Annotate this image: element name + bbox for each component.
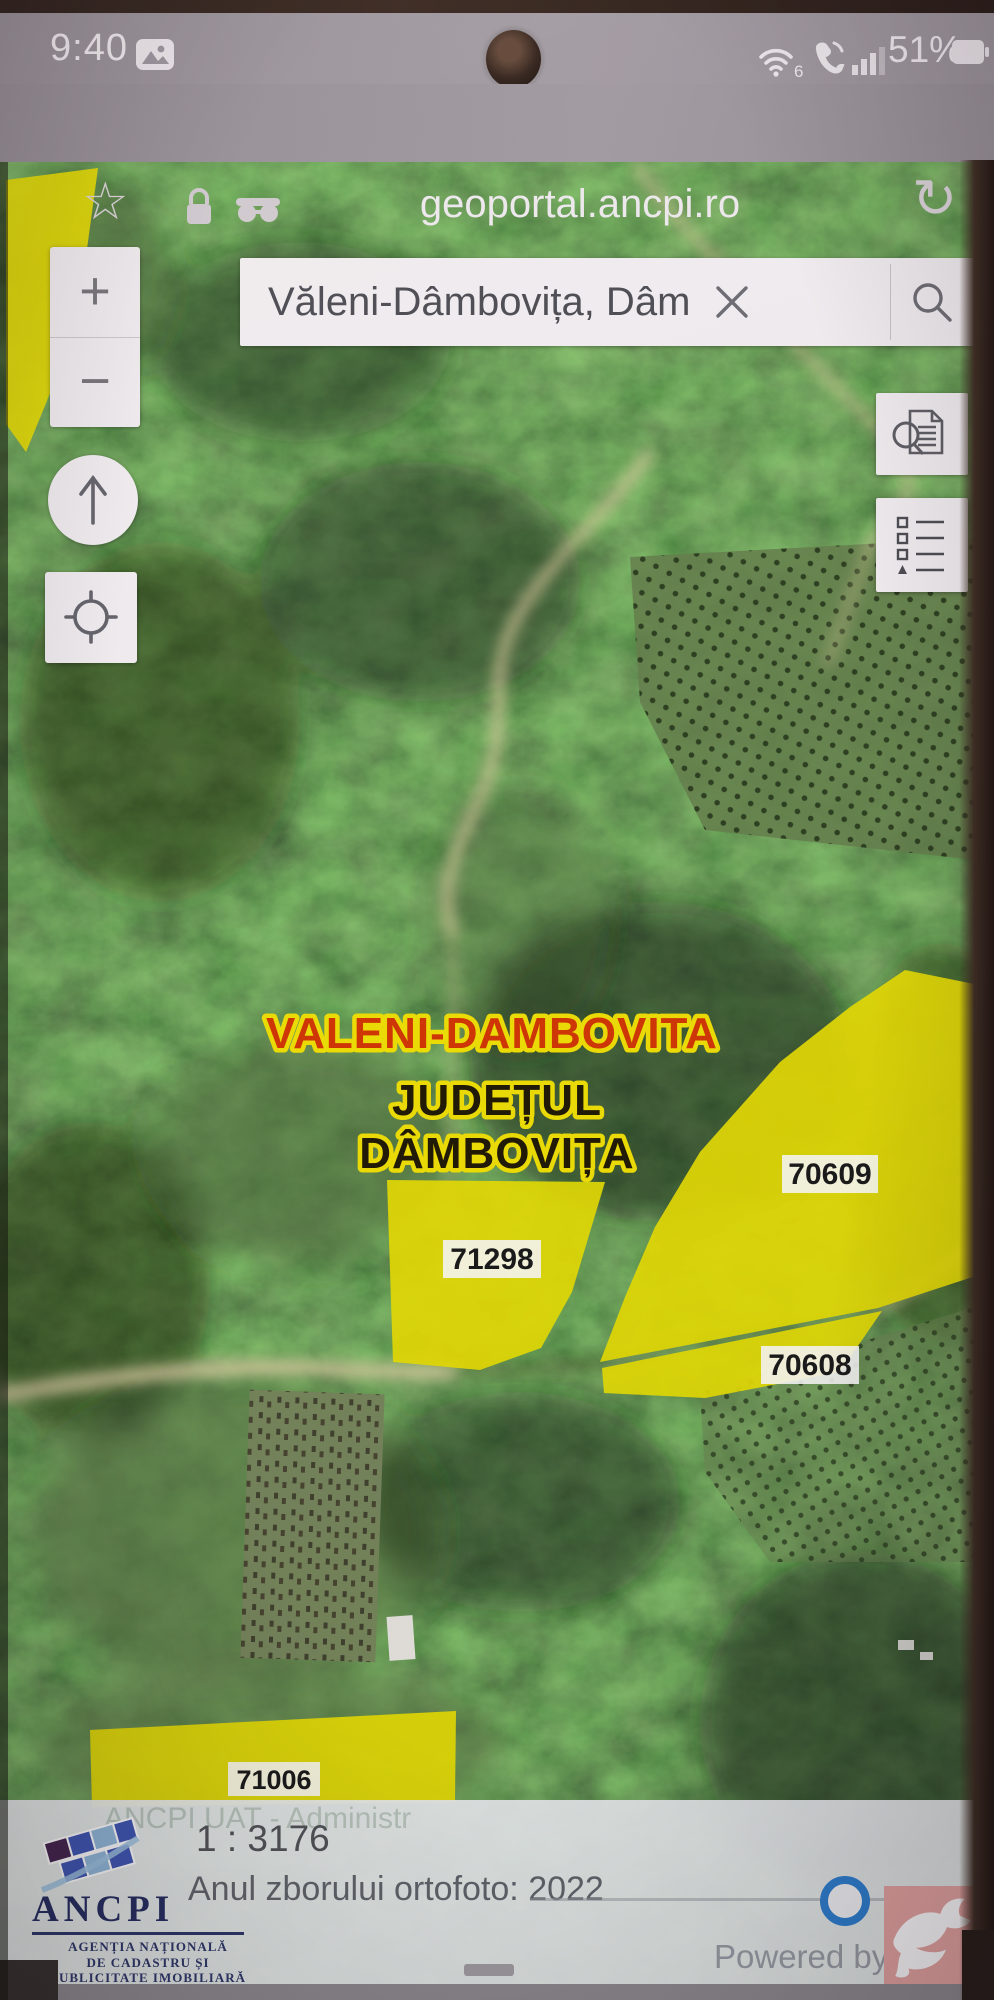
- zoom-out-button[interactable]: −: [50, 337, 140, 427]
- map-info-panel: ANCPI UAT - Administr 1 : 3176 Anul zbor…: [0, 1800, 994, 1984]
- front-camera: [486, 30, 541, 88]
- bookmark-star-icon[interactable]: ☆: [82, 176, 129, 228]
- ancpi-logo-subtitle: AGENȚIA NAȚIONALĂ DE CADASTRU ȘI PUBLICI…: [26, 1939, 270, 1986]
- phone-left-bezel: [0, 162, 8, 2000]
- nav-handle: [464, 1964, 514, 1976]
- signal-bars-icon: [852, 41, 888, 77]
- crosshair-icon: [45, 572, 137, 663]
- battery-percent: 51%: [888, 29, 962, 71]
- document-search-icon: [876, 393, 968, 475]
- my-location-button[interactable]: [45, 572, 137, 663]
- legend-layers-button[interactable]: [876, 498, 968, 592]
- north-arrow-icon: [48, 455, 138, 545]
- divider: [890, 264, 891, 340]
- cemetery-area: [240, 1390, 384, 1663]
- wifi-icon: 6: [756, 33, 804, 79]
- surface-below-phone: [0, 1984, 994, 2000]
- refresh-icon[interactable]: ↻: [912, 172, 957, 226]
- search-input[interactable]: Văleni-Dâmbovița, Dâm: [268, 280, 698, 325]
- gallery-notification-icon: [136, 39, 174, 70]
- zoom-control: + −: [50, 247, 140, 427]
- divider: [50, 337, 140, 338]
- zoom-in-button[interactable]: +: [50, 247, 140, 337]
- parcel-number: 70608: [768, 1349, 851, 1382]
- clock: 9:40: [50, 27, 128, 70]
- satellite-map[interactable]: VALENI-DAMBOVITA JUDEȚUL DÂMBOVIȚA 70609…: [0, 162, 994, 2000]
- parcel-number: 70609: [788, 1158, 871, 1191]
- building: [386, 1615, 415, 1661]
- phone-corner: [962, 1930, 994, 2000]
- powered-by-text: Powered by: [714, 1938, 888, 1976]
- compass-north-button[interactable]: [48, 455, 138, 545]
- browser-toolbar: ☆ geoportal.ancpi.ro ↻: [0, 84, 994, 162]
- map-search-box[interactable]: Văleni-Dâmbovița, Dâm: [240, 258, 975, 346]
- incognito-mask-icon: [234, 194, 284, 226]
- call-icon: [806, 35, 850, 79]
- county-label-1: JUDEȚUL: [392, 1076, 602, 1125]
- opacity-slider-handle[interactable]: [820, 1876, 870, 1926]
- parcel-search-button[interactable]: [876, 393, 968, 475]
- svg-text:6: 6: [794, 62, 803, 79]
- phone-screenshot: VALENI-DAMBOVITA JUDEȚUL DÂMBOVIȚA 70609…: [0, 0, 994, 2000]
- ancpi-flag-icon: [34, 1808, 154, 1896]
- locality-label: VALENI-DAMBOVITA: [266, 1009, 718, 1058]
- legend-list-icon: [876, 498, 968, 592]
- parcel-number: 71006: [236, 1765, 311, 1795]
- county-label-2: DÂMBOVIȚA: [359, 1128, 634, 1178]
- phone-corner: [0, 1960, 58, 2000]
- ancpi-logo: ANCPI AGENȚIA NAȚIONALĂ DE CADASTRU ȘI P…: [24, 1822, 274, 1986]
- lock-icon: [182, 184, 216, 230]
- address-bar-url[interactable]: geoportal.ancpi.ro: [300, 182, 860, 227]
- search-icon[interactable]: [908, 278, 956, 326]
- parcel-number: 71298: [450, 1243, 533, 1276]
- phone-top-bezel: [0, 0, 994, 13]
- clear-search-icon[interactable]: [710, 280, 754, 324]
- battery-icon: [952, 39, 992, 65]
- status-bar: 9:40 6 51%: [0, 13, 994, 84]
